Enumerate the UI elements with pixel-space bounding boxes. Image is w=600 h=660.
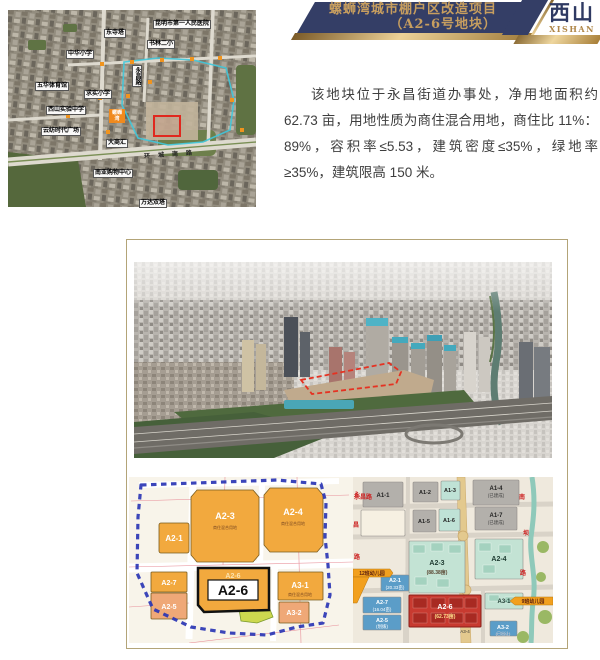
plot-description: 该地块位于永昌街道办事处，净用地面积约 62.73 亩，用地性质为商住混合用地，…: [284, 82, 598, 186]
sublabel-a2-4: 商住混合用地: [281, 520, 305, 526]
d-label-a1-5: A1-5: [418, 519, 430, 525]
district-badge: 西山 XISHAN: [544, 1, 600, 34]
map-label-pagoda: 东寺塔: [104, 29, 126, 38]
map-label-stadium: 五华体育馆: [35, 82, 69, 91]
page: 昆明市第一人民医院 东寺塔 书林二小 中华小学 五华体育馆 求实小学 西山实验中…: [0, 0, 600, 660]
street-right-1: 南: [519, 493, 525, 501]
label-a2-3: A2-3: [215, 511, 235, 521]
d-label-a2-3: A2-3: [429, 560, 444, 567]
map-label-mall-1: 大商汇: [106, 139, 128, 148]
district-name-en: XISHAN: [544, 24, 600, 34]
d-label-a3-1: A3-1: [497, 599, 511, 605]
map-label-middle-school: 西山实验中学: [46, 106, 86, 115]
map-label-project-area: 螺蛳 湾: [109, 109, 125, 123]
d-sub-a2-6: (62.73亩): [435, 613, 456, 620]
d-label-a1-3: A1-3: [444, 488, 456, 494]
d-label-a3-4: A3-4: [460, 629, 470, 634]
detail-plan-map: A1-1 A1-2 A1-3 A1-4 (已建成) A1-5 A1-6 A1-7…: [353, 477, 553, 643]
d-sub-a1-7: (已建成): [488, 519, 505, 526]
street-right-3: 路: [520, 569, 527, 577]
d-label-a2-7: A2-7: [376, 600, 388, 606]
project-title-line2: （A2-6号地块）: [300, 18, 497, 33]
d-sub-a2-3: (88.38亩): [427, 569, 448, 576]
d-sub-a1-4: (已建成): [488, 492, 505, 499]
plot-cream: [361, 510, 405, 536]
district-badge-gold-strip: [513, 35, 600, 44]
kindergarten-left-label: 12班幼儿园: [359, 570, 385, 577]
plot-outline-red: [154, 116, 180, 136]
label-a2-5: A2-5: [161, 604, 176, 611]
map-label-school-3: 求实小学: [84, 90, 112, 99]
a2-6-label: A2-6: [218, 582, 249, 598]
street-right-2: 坝: [523, 529, 529, 537]
street-left-1: 永: [353, 491, 361, 499]
banner-gold-strip: [291, 33, 534, 40]
satellite-location-map: 昆明市第一人民医院 东寺塔 书林二小 中华小学 五华体育馆 求实小学 西山实验中…: [8, 10, 256, 207]
d-label-a1-1: A1-1: [376, 493, 390, 499]
label-a2-1: A2-1: [165, 534, 183, 543]
roundabout-1: [458, 531, 468, 541]
zoning-plan-map: A2-6 A2-6 A2-3 商住混合用地 A2-4 商住混合用地 A2-1 A…: [129, 477, 353, 643]
aerial-photo: [134, 262, 552, 458]
label-a2-7: A2-7: [161, 580, 176, 587]
station-roof: [284, 400, 354, 409]
map-label-hospital: 昆明市第一人民医院: [153, 20, 211, 29]
banner-title: 螺蛳湾城市棚户区改造项目 （A2-6号地块）: [300, 3, 530, 32]
street-left-3: 路: [354, 553, 361, 561]
d-sub-a2-7: (16.04亩): [373, 606, 392, 613]
map-label-street-vertical: 永昌路: [132, 65, 142, 87]
d-label-a1-7: A1-7: [489, 513, 503, 519]
project-title-line1: 螺蛳湾城市棚户区改造项目: [300, 3, 497, 18]
d-sub-a3-2: (已出让): [496, 630, 511, 636]
project-area-line2: 湾: [110, 116, 124, 122]
map-label-mall-2: 南亚购物中心: [93, 169, 133, 178]
sublabel-a2-3: 商住混合用地: [213, 524, 237, 530]
map-label-school-2: 中华小学: [66, 50, 94, 59]
label-a2-4: A2-4: [283, 507, 303, 517]
kindergarten-right-label: 9班幼儿园: [522, 598, 545, 605]
d-label-a1-4: A1-4: [489, 486, 503, 492]
d-label-a2-6: A2-6: [437, 604, 452, 611]
map-label-school-1: 书林二小: [147, 40, 175, 49]
map-label-towers: 万达双塔: [139, 199, 167, 208]
plot-a2-6-ghost-label: A2-6: [225, 573, 240, 580]
street-left-2: 昌: [353, 521, 359, 529]
d-label-a1-2: A1-2: [419, 490, 431, 496]
d-sub-a2-5: (划拨): [376, 623, 388, 630]
plot-a2-4: [264, 488, 323, 552]
d-label-a2-4: A2-4: [491, 556, 506, 563]
district-name-cn: 西山: [544, 1, 600, 24]
d-label-a1-6: A1-6: [443, 518, 455, 524]
label-a3-2: A3-2: [286, 610, 301, 617]
map-label-plaza: 云纺时代广场: [41, 127, 81, 136]
d-sub-a2-1: (20.33亩): [386, 584, 405, 591]
label-a3-1: A3-1: [291, 581, 309, 590]
sublabel-a3-1: 商住混合用地: [288, 591, 312, 597]
d-label-a2-1: A2-1: [389, 578, 401, 584]
figure-frame: A2-6 A2-6 A2-3 商住混合用地 A2-4 商住混合用地 A2-1 A…: [126, 239, 568, 649]
